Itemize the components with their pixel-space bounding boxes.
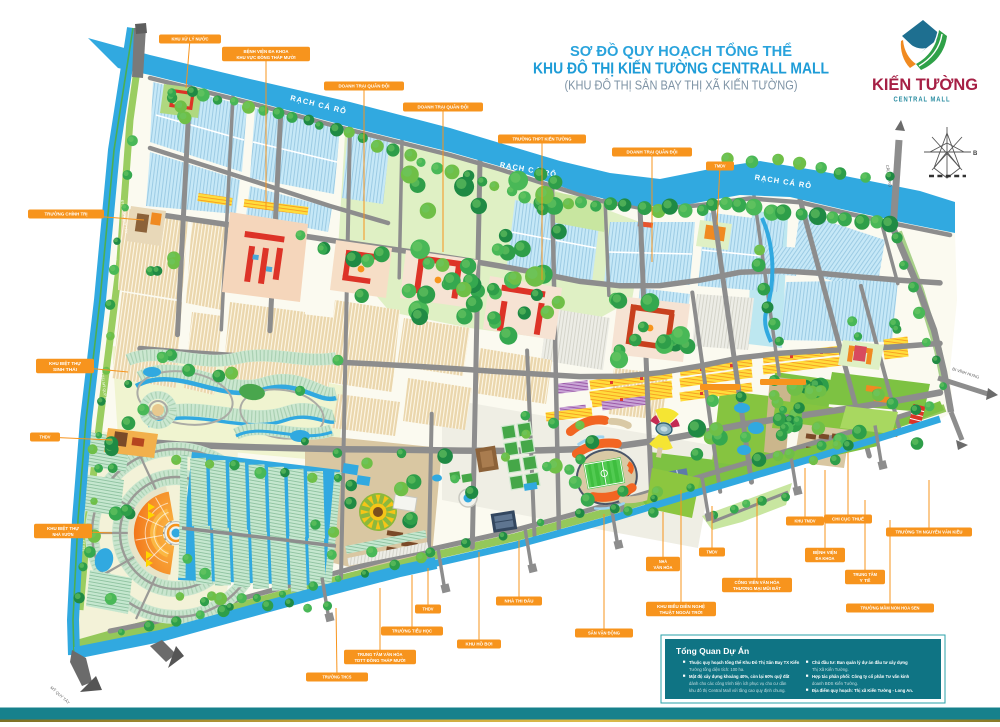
svg-text:SINH THÁI: SINH THÁI bbox=[53, 367, 77, 372]
svg-text:TRƯỜNG THPT KIẾN TƯỜNG: TRƯỜNG THPT KIẾN TƯỜNG bbox=[513, 137, 573, 142]
svg-text:KHU ĐÔ THỊ KIẾN TƯỜNG CENTRALL: KHU ĐÔ THỊ KIẾN TƯỜNG CENTRALL MALL bbox=[533, 60, 829, 78]
svg-text:CENTRAL MALL: CENTRAL MALL bbox=[894, 95, 951, 104]
svg-text:KHU VỰC ĐỒNG THÁP MƯỜI: KHU VỰC ĐỒNG THÁP MƯỜI bbox=[237, 55, 296, 60]
svg-text:TRUNG TÂM VĂN HÓA: TRUNG TÂM VĂN HÓA bbox=[358, 652, 403, 657]
svg-text:TDTT ĐỒNG THÁP MƯỜI: TDTT ĐỒNG THÁP MƯỜI bbox=[355, 658, 406, 663]
svg-text:NHÀ: NHÀ bbox=[659, 559, 667, 564]
svg-text:NHÀ THI ĐẤU: NHÀ THI ĐẤU bbox=[505, 599, 534, 604]
svg-text:(KHU ĐÔ THỊ SÂN BAY THỊ XÃ KIẾ: (KHU ĐÔ THỊ SÂN BAY THỊ XÃ KIẾN TƯỜNG) bbox=[565, 78, 798, 93]
svg-text:TRƯỜNG TIỂU HỌC: TRƯỜNG TIỂU HỌC bbox=[392, 629, 432, 634]
svg-text:Thuộc quy hoạch tổng thể Khu Đ: Thuộc quy hoạch tổng thể Khu Đô Thị Sân … bbox=[689, 660, 800, 665]
svg-text:CHI CỤC THUẾ: CHI CỤC THUẾ bbox=[832, 517, 864, 522]
svg-text:TRUNG TÂM: TRUNG TÂM bbox=[853, 572, 877, 577]
svg-text:DOANH TRẠI QUÂN ĐỘI: DOANH TRẠI QUÂN ĐỘI bbox=[418, 105, 469, 110]
svg-text:Địa điểm quy hoạch: Thị xã Kiế: Địa điểm quy hoạch: Thị xã Kiến Tường - … bbox=[812, 688, 913, 693]
svg-text:BỆNH VIỆN: BỆNH VIỆN bbox=[813, 550, 837, 555]
svg-text:THDV: THDV bbox=[40, 435, 51, 440]
svg-text:TRƯỜNG CHÍNH TRỊ: TRƯỜNG CHÍNH TRỊ bbox=[45, 212, 88, 217]
svg-text:THƯƠNG MẠI MŨI ĐẤT: THƯƠNG MẠI MŨI ĐẤT bbox=[733, 586, 781, 591]
svg-text:THUẬT NGOÀI TRỜI: THUẬT NGOÀI TRỜI bbox=[660, 610, 703, 615]
svg-text:KHU XỬ LÝ NƯỚC: KHU XỬ LÝ NƯỚC bbox=[172, 37, 209, 42]
svg-text:doanh BĐS Kiến Tường.: doanh BĐS Kiến Tường. bbox=[812, 681, 858, 686]
svg-text:Hợp tác phân phối: Công ty cổ: Hợp tác phân phối: Công ty cổ phần Tư vấ… bbox=[812, 674, 910, 679]
svg-text:Chủ đầu tư: Ban quản lý dự án: Chủ đầu tư: Ban quản lý dự án đầu tư xây… bbox=[812, 660, 908, 665]
svg-text:KHU BIỂU DIỄN NGHỆ: KHU BIỂU DIỄN NGHỆ bbox=[657, 604, 705, 609]
svg-text:TRƯỜNG MẦM NON HOA SEN: TRƯỜNG MẦM NON HOA SEN bbox=[861, 606, 920, 611]
svg-text:khu đô thị Central Mall với tầ: khu đô thị Central Mall với tầng cao quy… bbox=[689, 688, 786, 693]
svg-text:TMDV: TMDV bbox=[707, 550, 718, 555]
svg-text:THDV: THDV bbox=[423, 607, 434, 612]
svg-text:DOANH TRẠI QUÂN ĐỘI: DOANH TRẠI QUÂN ĐỘI bbox=[339, 84, 390, 89]
svg-text:KHU BIỆT THỰ: KHU BIỆT THỰ bbox=[49, 361, 81, 366]
svg-text:SÂN VẬN ĐỘNG: SÂN VẬN ĐỘNG bbox=[588, 631, 621, 636]
svg-text:Tường tổng diện tích: 100 ha.: Tường tổng diện tích: 100 ha. bbox=[689, 667, 744, 672]
svg-text:SƠ ĐỒ QUY HOẠCH TỔNG THỂ: SƠ ĐỒ QUY HOẠCH TỔNG THỂ bbox=[570, 42, 792, 60]
svg-text:ĐA KHOA: ĐA KHOA bbox=[816, 556, 835, 561]
svg-text:CÔNG VIÊN VĂN HÓA: CÔNG VIÊN VĂN HÓA bbox=[735, 580, 780, 585]
svg-text:B: B bbox=[973, 151, 978, 157]
svg-text:TRƯỜNG TH NGUYỄN VĂN KIỀU: TRƯỜNG TH NGUYỄN VĂN KIỀU bbox=[896, 530, 963, 535]
svg-text:NHÀ VƯỜN: NHÀ VƯỜN bbox=[53, 532, 74, 537]
svg-text:KHU BIỆT THỰ: KHU BIỆT THỰ bbox=[47, 526, 79, 531]
svg-text:Y TẾ: Y TẾ bbox=[860, 578, 871, 583]
svg-text:TMDV: TMDV bbox=[715, 164, 726, 169]
svg-text:KHU TMDV: KHU TMDV bbox=[795, 519, 816, 524]
svg-text:DOANH TRẠI QUÂN ĐỘI: DOANH TRẠI QUÂN ĐỘI bbox=[627, 150, 678, 155]
svg-text:dành cho các công trình tiện í: dành cho các công trình tiện ích phục vụ… bbox=[689, 681, 787, 686]
svg-text:KIẾN TƯỜNG: KIẾN TƯỜNG bbox=[872, 75, 978, 94]
svg-text:Mật độ xây dựng khoảng 40%, cò: Mật độ xây dựng khoảng 40%, còn lại 60% … bbox=[689, 674, 790, 679]
svg-text:KHU HỒ BƠI: KHU HỒ BƠI bbox=[466, 642, 493, 647]
svg-text:Tổng Quan Dự Án: Tổng Quan Dự Án bbox=[676, 646, 749, 656]
svg-text:VĂN HÓA: VĂN HÓA bbox=[654, 565, 673, 570]
svg-text:BỆNH VIỆN ĐA KHOA: BỆNH VIỆN ĐA KHOA bbox=[244, 49, 289, 54]
svg-text:Thị Xã Kiến Tường.: Thị Xã Kiến Tường. bbox=[812, 667, 849, 672]
svg-text:TRƯỜNG THCS: TRƯỜNG THCS bbox=[323, 675, 352, 680]
